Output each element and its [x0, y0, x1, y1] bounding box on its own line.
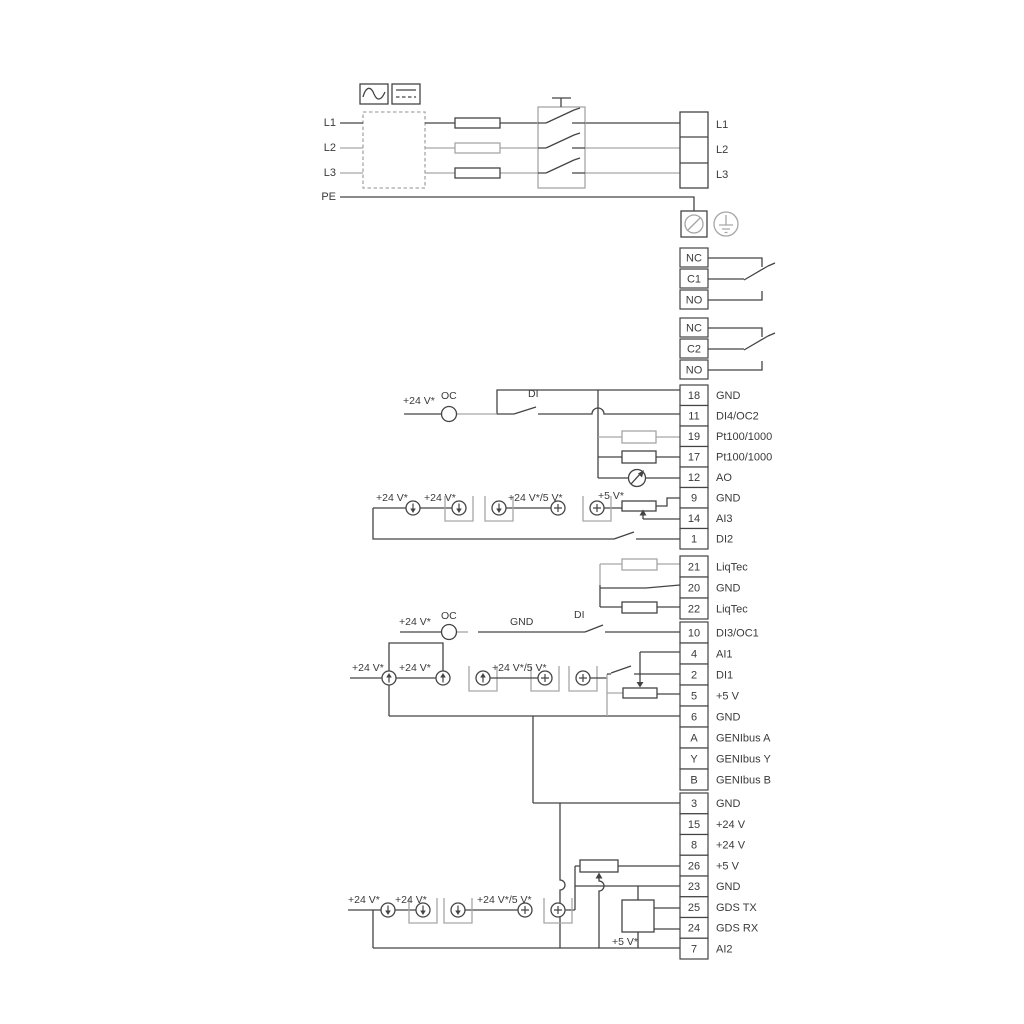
- relay-terminal-label: NC: [686, 253, 702, 265]
- mains-terminal-block: [680, 112, 708, 188]
- terminal-label: DI3/OC1: [716, 627, 759, 639]
- pt100-19-resistor: [622, 431, 656, 443]
- relay-terminal-label: NC: [686, 323, 702, 335]
- diagram-label: L3: [324, 167, 336, 179]
- ai1-frame: [350, 643, 680, 716]
- terminal-number: 9: [691, 493, 697, 505]
- terminal-label: GND: [716, 493, 741, 505]
- ai1-potentiometer: [623, 688, 657, 698]
- relay-terminal-label: NO: [686, 365, 703, 377]
- diagram-label: +24 V*: [395, 894, 427, 906]
- diagram-label: L3: [716, 169, 728, 181]
- terminal-number: 8: [691, 840, 697, 852]
- terminal-number: 12: [688, 472, 700, 484]
- diagram-label: L1: [324, 117, 336, 129]
- gnd-branch-hop: [560, 803, 565, 948]
- terminal-label: DI1: [716, 669, 733, 681]
- terminal-label: GENIbus B: [716, 774, 771, 786]
- terminal-number: 3: [691, 798, 697, 810]
- terminal-label: GDS TX: [716, 902, 757, 914]
- ai3-potentiometer: [622, 501, 656, 511]
- ai3-pot-to-gnd: [656, 498, 680, 506]
- terminal-number: 7: [691, 943, 697, 955]
- terminal-label: AI2: [716, 943, 733, 955]
- terminal-number: A: [690, 732, 698, 744]
- wire-pe: [340, 197, 694, 211]
- relay-terminal-label: C1: [687, 274, 701, 286]
- terminal-number: 5: [691, 690, 697, 702]
- terminal-label: Pt100/1000: [716, 452, 772, 464]
- pt100-17-resistor: [622, 451, 656, 463]
- diagram-label: PE: [321, 191, 336, 203]
- diagram-label: +24 V*: [399, 662, 431, 674]
- terminal-label: +24 V: [716, 840, 746, 852]
- di3-switch-wire: [478, 625, 680, 632]
- open-collector-icon: [442, 407, 457, 422]
- fuse-l3: [455, 168, 500, 178]
- generated-elements: NCC1NONCC2NO18GND11DI4/OC219Pt100/100017…: [321, 117, 772, 959]
- diagram-label: +24 V*: [348, 894, 380, 906]
- terminal-label: +5 V: [716, 690, 740, 702]
- ai1-wiper: [640, 652, 680, 684]
- switch-blades: [538, 108, 585, 173]
- liqtec22-resistor: [622, 602, 657, 613]
- terminal-number: 14: [688, 513, 700, 525]
- io-top-wiring: [373, 390, 680, 539]
- rcd-dashed-box: [363, 112, 425, 188]
- fuse-l1: [455, 118, 500, 128]
- terminal-label: GND: [716, 881, 741, 893]
- terminal-number: 22: [688, 603, 700, 615]
- ai2-wiper-arrowhead: [596, 873, 603, 879]
- wiring-diagram-page: NCC1NONCC2NO18GND11DI4/OC219Pt100/100017…: [0, 0, 1024, 1024]
- terminal-label: GND: [716, 582, 741, 594]
- di2-switch: [614, 532, 680, 539]
- terminal-number: 23: [688, 881, 700, 893]
- gnd-link-wire: [533, 716, 680, 803]
- diagram-label: +24 V*: [352, 662, 384, 674]
- terminal-number: 1: [691, 534, 697, 546]
- terminal-label: GND: [716, 798, 741, 810]
- diagram-label: +24 V*/5 V*: [492, 662, 547, 674]
- relay-contact-drawings: [708, 258, 775, 370]
- switch-handle: [552, 98, 571, 107]
- gds-sensor-box: [622, 900, 654, 932]
- terminal-number: 19: [688, 431, 700, 443]
- wiring-diagram: NCC1NONCC2NO18GND11DI4/OC219Pt100/100017…: [0, 0, 1024, 1024]
- diagram-label: +24 V*: [424, 492, 456, 504]
- terminal-label: AI3: [716, 513, 733, 525]
- terminal-number: 24: [688, 923, 700, 935]
- diagram-label: +24 V*: [403, 395, 435, 407]
- terminal-number: 18: [688, 390, 700, 402]
- terminal-number: 10: [688, 627, 700, 639]
- diagram-label: OC: [441, 390, 457, 402]
- diagram-label: DI: [528, 388, 539, 400]
- terminal-number: 17: [688, 452, 700, 464]
- diagram-label: GND: [510, 616, 534, 628]
- terminal-label: LiqTec: [716, 561, 748, 573]
- terminal-label: GND: [716, 711, 741, 723]
- relay-terminal-label: C2: [687, 344, 701, 356]
- diagram-label: OC: [441, 610, 457, 622]
- diagram-label: L1: [716, 119, 728, 131]
- terminal-label: Pt100/1000: [716, 431, 772, 443]
- relay2-contact: [708, 328, 775, 370]
- diagram-label: +5 V*: [612, 936, 638, 948]
- terminal-label: GND: [716, 390, 741, 402]
- terminal-label: +5 V: [716, 860, 740, 872]
- mains-input-section: [340, 84, 738, 237]
- diagram-label: +24 V*: [399, 616, 431, 628]
- relay1-contact: [708, 258, 775, 300]
- terminal-label: DI4/OC2: [716, 411, 759, 423]
- di1-switch: [607, 666, 680, 674]
- io-bottom-wiring: [348, 803, 680, 948]
- rcd-dc-symbol-box: [392, 84, 420, 104]
- terminal-number: 15: [688, 819, 700, 831]
- liqtec21-resistor: [622, 559, 657, 570]
- terminal-number: 4: [691, 648, 697, 660]
- terminal-label: DI2: [716, 534, 733, 546]
- diagram-label: DI: [574, 609, 585, 621]
- fuse-l2: [455, 143, 500, 153]
- diagram-label: +24 V*/5 V*: [508, 492, 563, 504]
- diagram-label: +24 V*: [376, 492, 408, 504]
- terminal-number: 6: [691, 711, 697, 723]
- ai1-wiper-arrowhead: [637, 682, 644, 688]
- terminal-number: 11: [688, 411, 699, 423]
- terminal-number: 21: [688, 561, 700, 573]
- ai3-wiper: [643, 513, 680, 519]
- terminal-number: 20: [688, 582, 700, 594]
- terminal-number: Y: [690, 753, 698, 765]
- terminal-label: GENIbus A: [716, 732, 771, 744]
- terminal-label: GENIbus Y: [716, 753, 771, 765]
- diagram-label: +24 V*/5 V*: [477, 894, 532, 906]
- terminal-label: AO: [716, 472, 732, 484]
- terminal-number: B: [690, 774, 697, 786]
- ai2-wiper-wire: [599, 876, 604, 948]
- terminal-label: +24 V: [716, 819, 746, 831]
- terminal-label: GDS RX: [716, 923, 759, 935]
- diagram-label: L2: [716, 144, 728, 156]
- terminal-number: 2: [691, 669, 697, 681]
- io-mid-wiring: [350, 625, 680, 803]
- terminal-number: 26: [688, 860, 700, 872]
- diagram-label: +5 V*: [598, 490, 624, 502]
- relay-terminal-label: NO: [686, 295, 703, 307]
- diagram-label: L2: [324, 142, 336, 154]
- di4-switch-blade: [514, 407, 536, 414]
- terminal-label: LiqTec: [716, 603, 748, 615]
- wire-di4: [538, 408, 680, 414]
- terminal-label: AI1: [716, 648, 733, 660]
- open-collector-icon: [442, 625, 457, 640]
- ai2-potentiometer: [580, 860, 618, 872]
- ai1-gnd-trunk: [607, 674, 623, 716]
- liqtec-wiring: [600, 559, 680, 613]
- terminal-number: 25: [688, 902, 700, 914]
- earth-glyph: [719, 215, 733, 233]
